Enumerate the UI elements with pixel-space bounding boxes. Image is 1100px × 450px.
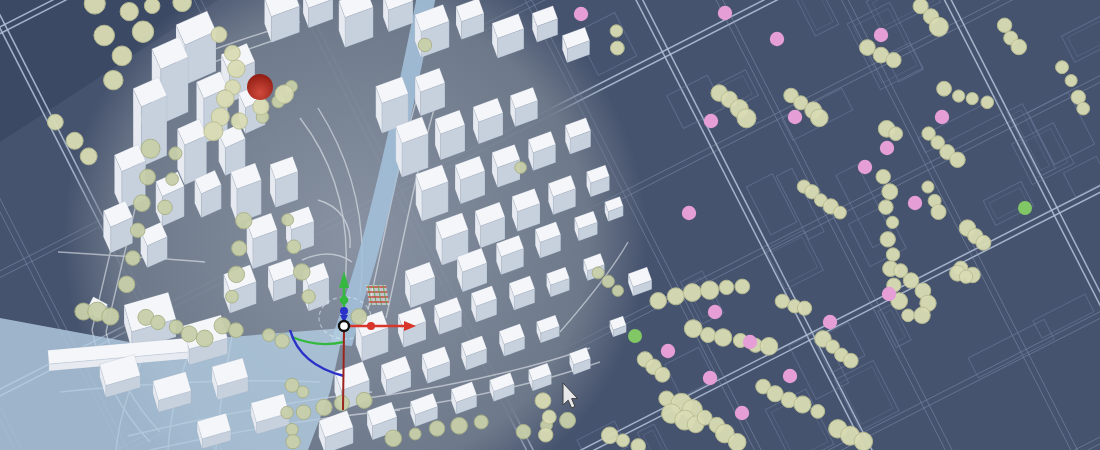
building-block[interactable] [268,258,296,301]
tree-marker[interactable] [922,181,934,193]
tree-marker[interactable] [418,38,431,51]
tree-marker[interactable] [132,21,153,42]
gizmo-height-line[interactable] [343,331,344,410]
tree-marker[interactable] [94,25,115,46]
tree-marker[interactable] [889,127,903,141]
tree-marker[interactable] [886,248,899,261]
tree-marker[interactable] [616,434,629,447]
tree-marker[interactable] [334,396,349,411]
tree-marker[interactable] [262,329,275,342]
tree-marker[interactable] [281,406,293,418]
tree-marker[interactable] [286,423,298,435]
poi-dot-pink[interactable] [935,110,949,124]
tree-marker[interactable] [542,410,556,424]
tree-marker[interactable] [226,290,239,303]
tree-marker[interactable] [997,18,1011,32]
building-block[interactable] [416,165,448,221]
building-block[interactable] [455,156,485,204]
tree-marker[interactable] [211,27,227,43]
tree-marker[interactable] [118,276,135,293]
tree-marker[interactable] [811,404,825,418]
tree-marker[interactable] [879,200,894,215]
poi-dot-pink[interactable] [908,196,922,210]
tree-marker[interactable] [1077,102,1090,115]
tree-marker[interactable] [80,148,97,165]
tree-marker[interactable] [302,290,316,304]
tree-marker[interactable] [667,288,684,305]
tree-marker[interactable] [104,70,123,89]
tree-marker[interactable] [929,17,948,36]
tree-marker[interactable] [282,214,294,226]
gizmo-origin[interactable] [339,321,349,331]
building-block[interactable] [512,188,540,231]
tree-marker[interactable] [296,405,311,420]
tree-marker[interactable] [287,240,301,254]
poi-dot-pink[interactable] [735,406,749,420]
poi-dot-pink[interactable] [574,7,588,21]
building-block[interactable] [396,117,428,177]
tree-marker[interactable] [297,386,309,398]
tree-marker[interactable] [728,433,746,450]
tree-marker[interactable] [169,147,182,160]
tree-marker[interactable] [610,41,624,55]
tree-marker[interactable] [700,281,718,299]
building-block[interactable] [435,110,465,160]
tree-marker[interactable] [602,275,614,287]
poi-dot-pink[interactable] [770,32,784,46]
scene-canvas [0,0,1100,450]
tree-marker[interactable] [351,309,367,325]
tree-marker[interactable] [275,85,294,104]
tree-marker[interactable] [515,162,527,174]
tree-marker[interactable] [451,417,468,434]
tree-marker[interactable] [610,25,622,37]
tree-marker[interactable] [130,223,144,237]
tree-marker[interactable] [224,45,240,61]
tree-marker[interactable] [737,109,756,128]
tree-marker[interactable] [592,267,604,279]
tree-marker[interactable] [47,114,63,130]
tree-marker[interactable] [140,169,156,185]
poi-dot-pink[interactable] [703,371,717,385]
tree-marker[interactable] [775,294,789,308]
tree-marker[interactable] [474,415,488,429]
poi-dot-pink[interactable] [882,287,896,301]
tree-marker[interactable] [760,337,778,355]
poi-dot-pink[interactable] [874,28,888,42]
tree-marker[interactable] [683,284,701,302]
tree-marker[interactable] [950,152,965,167]
tree-marker[interactable] [794,396,811,413]
tree-marker[interactable] [719,280,733,294]
tree-marker[interactable] [158,200,173,215]
tree-marker[interactable] [356,392,372,408]
gizmo-grid-widget[interactable] [366,285,390,305]
tree-marker[interactable] [228,60,245,77]
poi-dot-pink[interactable] [823,315,837,329]
tree-marker[interactable] [181,326,197,342]
tree-marker[interactable] [976,235,991,250]
tree-marker[interactable] [253,99,269,115]
tree-marker[interactable] [886,53,901,68]
poi-dome-red[interactable] [247,74,273,100]
building-block[interactable] [195,170,222,218]
tree-marker[interactable] [655,367,670,382]
gizmo-axis-y-handle[interactable] [340,296,349,305]
tree-marker[interactable] [125,251,140,266]
poi-dot-pink[interactable] [718,6,732,20]
tree-marker[interactable] [141,139,160,158]
tree-marker[interactable] [684,320,702,338]
tree-marker[interactable] [275,334,289,348]
tree-marker[interactable] [953,90,965,102]
tree-marker[interactable] [914,307,930,323]
gizmo-axis-x-handle[interactable] [367,322,375,330]
tree-marker[interactable] [966,93,978,105]
tree-marker[interactable] [981,96,994,109]
tree-marker[interactable] [516,424,531,439]
tree-marker[interactable] [859,40,875,56]
tree-marker[interactable] [286,435,300,449]
tree-marker[interactable] [931,204,946,219]
poi-dot-pink[interactable] [858,160,872,174]
building-block[interactable] [270,156,298,207]
tree-marker[interactable] [1011,39,1027,55]
poi-dot-pink[interactable] [704,114,718,128]
tree-marker[interactable] [880,232,895,247]
poi-dot-pink[interactable] [880,141,894,155]
tree-marker[interactable] [236,213,252,229]
tree-marker[interactable] [601,427,618,444]
tree-marker[interactable] [214,317,231,334]
tree-marker[interactable] [882,184,898,200]
poi-dot-pink[interactable] [708,305,722,319]
tree-marker[interactable] [228,266,244,282]
tree-marker[interactable] [834,206,847,219]
poi-dot-pink[interactable] [743,335,757,349]
poi-dot-pink[interactable] [788,110,802,124]
tree-marker[interactable] [112,46,132,66]
tree-marker[interactable] [535,393,551,409]
tree-marker[interactable] [560,412,576,428]
tree-marker[interactable] [902,309,915,322]
viewport-3d-city[interactable] [0,0,1100,450]
tree-marker[interactable] [102,308,119,325]
poi-dot-pink[interactable] [682,206,696,220]
tree-marker[interactable] [539,428,553,442]
tree-marker[interactable] [797,301,811,315]
tree-marker[interactable] [294,264,311,281]
tree-marker[interactable] [612,285,623,296]
tree-marker[interactable] [886,216,898,228]
tree-marker[interactable] [232,241,247,256]
poi-dot-green[interactable] [628,329,642,343]
tree-marker[interactable] [66,132,83,149]
building-block[interactable] [103,201,132,253]
tree-marker[interactable] [229,323,244,338]
poi-dot-pink[interactable] [783,369,797,383]
tree-marker[interactable] [204,122,223,141]
tree-marker[interactable] [429,421,444,436]
tree-marker[interactable] [151,315,165,329]
tree-marker[interactable] [1056,61,1069,74]
gizmo-axis-z-handle[interactable] [340,307,348,315]
tree-marker[interactable] [1065,75,1077,87]
tree-marker[interactable] [120,2,138,20]
tree-marker[interactable] [735,279,750,294]
poi-dot-green[interactable] [1018,201,1032,215]
tree-marker[interactable] [166,173,179,186]
tree-marker[interactable] [650,293,667,310]
tree-marker[interactable] [843,353,858,368]
tree-marker[interactable] [134,195,151,212]
tree-marker[interactable] [316,399,332,415]
tree-marker[interactable] [700,327,715,342]
building-block[interactable] [415,68,445,116]
tree-marker[interactable] [231,113,247,129]
poi-dot-pink[interactable] [661,344,675,358]
tree-marker[interactable] [714,329,732,347]
tree-marker[interactable] [854,432,872,450]
tree-marker[interactable] [937,81,952,96]
tree-marker[interactable] [810,109,828,127]
tree-marker[interactable] [216,90,234,108]
tree-marker[interactable] [385,430,402,447]
tree-marker[interactable] [196,330,213,347]
tree-marker[interactable] [876,169,890,183]
tree-marker[interactable] [409,428,421,440]
tree-marker[interactable] [959,270,972,283]
tree-marker[interactable] [144,0,159,14]
tree-marker[interactable] [631,439,646,450]
